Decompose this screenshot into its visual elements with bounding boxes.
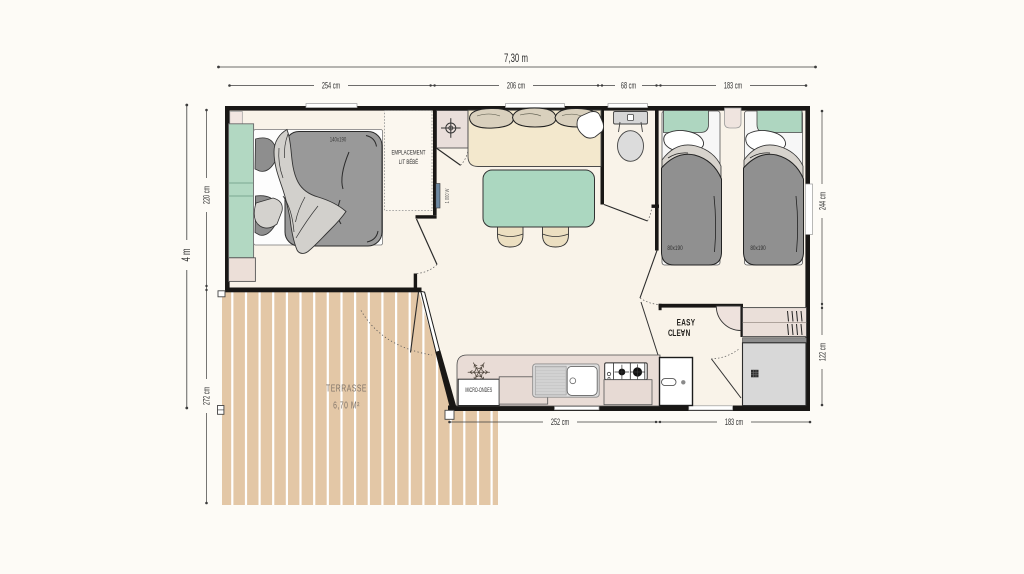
- svg-text:LIT BÉBÉ: LIT BÉBÉ: [399, 158, 419, 166]
- svg-text:254 cm: 254 cm: [322, 80, 340, 91]
- svg-text:A: A: [680, 327, 685, 337]
- svg-text:140x190: 140x190: [330, 137, 347, 144]
- svg-text:252 cm: 252 cm: [551, 417, 569, 428]
- svg-text:EASY: EASY: [677, 317, 696, 327]
- svg-text:220 cm: 220 cm: [201, 186, 212, 204]
- svg-text:272 cm: 272 cm: [201, 387, 212, 405]
- svg-text:183 cm: 183 cm: [724, 80, 742, 91]
- svg-text:122 cm: 122 cm: [817, 343, 828, 361]
- svg-text:244 cm: 244 cm: [817, 192, 828, 210]
- svg-text:80x190: 80x190: [750, 245, 765, 252]
- svg-text:183 cm: 183 cm: [725, 417, 743, 428]
- svg-text:MICRO-ONDES: MICRO-ONDES: [465, 387, 492, 394]
- svg-text:TERRASSE: TERRASSE: [326, 382, 367, 394]
- svg-text:68 cm: 68 cm: [621, 80, 636, 91]
- svg-text:6,70 M²: 6,70 M²: [333, 399, 360, 411]
- svg-text:80x190: 80x190: [667, 245, 682, 252]
- svg-text:EMPLACEMENT: EMPLACEMENT: [391, 150, 425, 157]
- svg-text:7,30 m: 7,30 m: [504, 53, 528, 66]
- svg-text:1 000 W: 1 000 W: [444, 188, 451, 203]
- svg-text:L: L: [672, 328, 676, 338]
- svg-text:N: N: [686, 328, 691, 338]
- svg-text:4 m: 4 m: [181, 248, 194, 261]
- svg-text:206 cm: 206 cm: [507, 80, 525, 91]
